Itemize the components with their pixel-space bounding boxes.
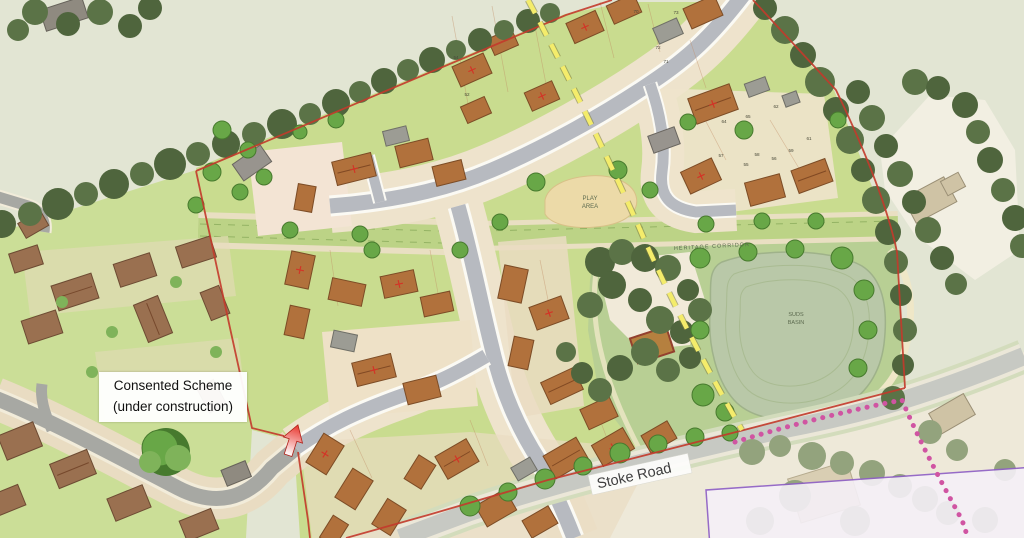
plot-number: 72 [655,45,661,50]
svg-text:AREA: AREA [582,204,598,210]
plot-number: 59 [788,148,794,153]
plot-number: 62 [773,104,779,109]
plot-number: 64 [721,119,727,124]
consented-scheme-label: Consented Scheme (under construction) [99,372,247,422]
svg-text:BASIN: BASIN [788,320,805,326]
masterplan-drawing: PLAY AREA HERITAGE CORRIDOR SUDS BASIN S… [0,0,1024,538]
plot-number: 56 [771,156,777,161]
plot-number: 57 [718,153,724,158]
plot-number: 70 [633,9,639,14]
consented-scheme-label-line2: (under construction) [99,396,247,417]
plot-number: 71 [663,59,669,64]
plot-number: 52 [464,92,470,97]
plot-number: 55 [743,162,749,167]
svg-text:PLAY: PLAY [583,196,598,202]
plot-number: 54 [453,55,459,60]
svg-text:SUDS: SUDS [788,312,804,318]
site-plan-map: PLAY AREA HERITAGE CORRIDOR SUDS BASIN S… [0,0,1024,538]
plot-number: 61 [806,136,812,141]
plot-number: 58 [754,152,760,157]
suds-basin-shape [710,252,886,420]
consented-scheme-label-line1: Consented Scheme [99,375,247,396]
plot-number: 73 [673,10,679,15]
plot-number: 65 [745,114,751,119]
